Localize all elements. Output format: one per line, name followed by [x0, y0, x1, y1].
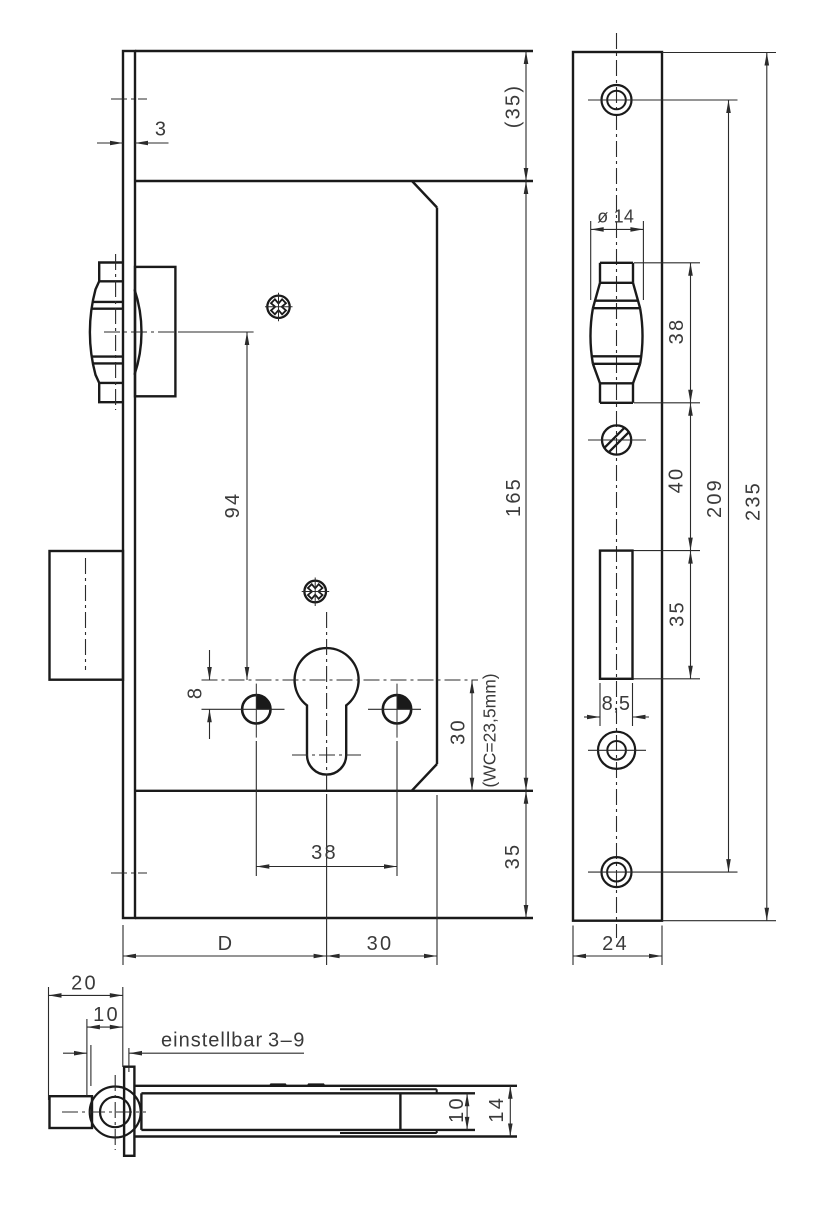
svg-text:30: 30	[367, 933, 394, 955]
svg-text:30: 30	[448, 718, 470, 745]
svg-text:(WC=23,5mm): (WC=23,5mm)	[480, 673, 500, 787]
svg-text:94: 94	[222, 492, 244, 519]
svg-text:20: 20	[71, 972, 98, 994]
svg-text:38: 38	[666, 318, 688, 345]
svg-text:35: 35	[667, 600, 689, 627]
svg-text:3: 3	[155, 118, 168, 140]
svg-text:3–9: 3–9	[268, 1030, 306, 1052]
svg-text:209: 209	[704, 478, 726, 518]
svg-text:10: 10	[446, 1096, 468, 1123]
svg-text:8: 8	[185, 686, 207, 699]
svg-text:ø 14: ø 14	[597, 207, 634, 227]
svg-text:40: 40	[666, 467, 688, 494]
svg-text:38: 38	[311, 842, 338, 864]
svg-text:(35): (35)	[503, 84, 525, 128]
svg-text:D: D	[218, 933, 235, 955]
svg-text:14: 14	[486, 1096, 508, 1123]
svg-text:235: 235	[742, 481, 764, 521]
svg-text:10: 10	[93, 1004, 120, 1026]
svg-text:einstellbar: einstellbar	[161, 1030, 263, 1052]
svg-text:8,5: 8,5	[602, 693, 631, 715]
svg-text:165: 165	[503, 477, 525, 517]
svg-text:35: 35	[502, 843, 524, 870]
svg-text:24: 24	[602, 933, 629, 955]
